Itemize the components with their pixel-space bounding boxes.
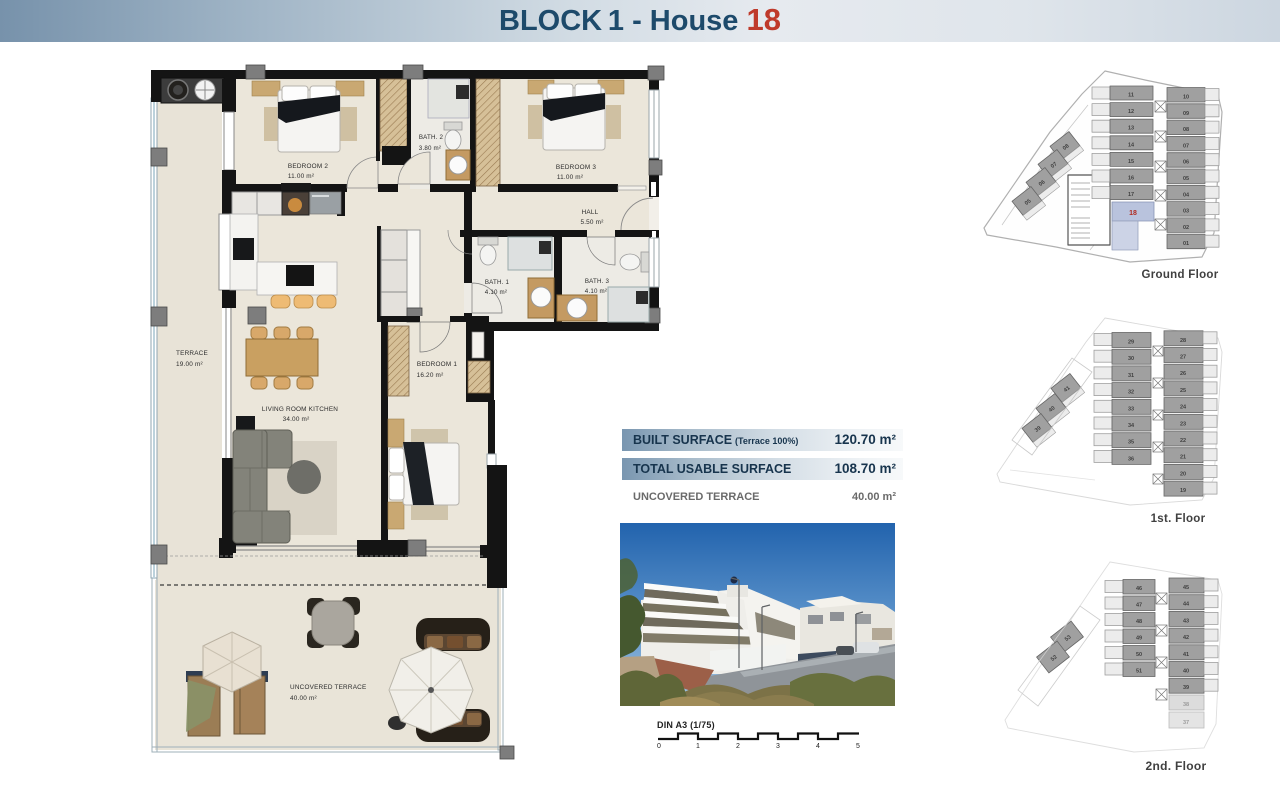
svg-text:BEDROOM 3: BEDROOM 3 <box>556 164 596 171</box>
svg-text:19: 19 <box>1180 488 1186 494</box>
svg-text:44: 44 <box>1183 602 1190 608</box>
svg-text:DIN A3 (1/75): DIN A3 (1/75) <box>657 720 715 730</box>
svg-text:40: 40 <box>1183 669 1189 675</box>
svg-text:35: 35 <box>1128 440 1134 446</box>
svg-text:01: 01 <box>1183 241 1189 247</box>
svg-text:11.00 m²: 11.00 m² <box>557 174 583 181</box>
svg-text:12: 12 <box>1128 109 1134 115</box>
svg-text:15: 15 <box>1128 159 1134 165</box>
svg-text:25: 25 <box>1180 388 1186 394</box>
svg-text:BEDROOM 1: BEDROOM 1 <box>417 361 457 368</box>
svg-text:2nd. Floor: 2nd. Floor <box>1146 759 1207 773</box>
svg-text:43: 43 <box>1183 618 1189 624</box>
svg-text:04: 04 <box>1183 192 1190 198</box>
svg-text:3: 3 <box>776 743 780 750</box>
svg-text:1st. Floor: 1st. Floor <box>1151 513 1206 525</box>
svg-text:5.50 m²: 5.50 m² <box>580 219 603 226</box>
svg-text:45: 45 <box>1183 585 1189 591</box>
svg-text:21: 21 <box>1180 455 1186 461</box>
svg-text:LIVING ROOM KITCHEN: LIVING ROOM KITCHEN <box>262 406 338 413</box>
svg-text:18: 18 <box>1129 210 1137 217</box>
svg-text:22: 22 <box>1180 438 1186 444</box>
svg-text:38: 38 <box>1183 702 1189 708</box>
svg-text:0: 0 <box>657 743 661 750</box>
svg-text:06: 06 <box>1183 160 1189 166</box>
svg-text:50: 50 <box>1136 652 1142 658</box>
svg-text:BEDROOM 2: BEDROOM 2 <box>288 163 328 170</box>
svg-text:51: 51 <box>1136 669 1142 675</box>
svg-text:39: 39 <box>1183 685 1189 691</box>
svg-text:1: 1 <box>696 743 700 750</box>
svg-text:48: 48 <box>1136 619 1142 625</box>
svg-text:24: 24 <box>1180 405 1187 411</box>
svg-text:HALL: HALL <box>582 209 599 216</box>
svg-text:41: 41 <box>1183 652 1189 658</box>
svg-text:36: 36 <box>1128 456 1134 462</box>
svg-text:30: 30 <box>1128 356 1134 362</box>
svg-text:20: 20 <box>1180 471 1186 477</box>
svg-text:5: 5 <box>856 743 860 750</box>
svg-text:TERRACE: TERRACE <box>176 350 208 357</box>
svg-text:19.00 m²: 19.00 m² <box>176 361 203 368</box>
svg-text:03: 03 <box>1183 209 1189 215</box>
svg-text:07: 07 <box>1183 143 1189 149</box>
svg-text:16: 16 <box>1128 176 1134 182</box>
svg-text:BATH. 1: BATH. 1 <box>485 279 510 286</box>
svg-text:UNCOVERED TERRACE: UNCOVERED TERRACE <box>290 684 366 691</box>
svg-text:27: 27 <box>1180 355 1186 361</box>
svg-text:2: 2 <box>736 743 740 750</box>
svg-text:4.10 m²: 4.10 m² <box>585 288 607 295</box>
svg-text:02: 02 <box>1183 225 1189 231</box>
svg-text:34: 34 <box>1128 423 1135 429</box>
svg-text:28: 28 <box>1180 338 1186 344</box>
svg-text:11: 11 <box>1128 93 1134 99</box>
svg-text:4: 4 <box>816 743 820 750</box>
svg-text:34.00 m²: 34.00 m² <box>283 416 310 423</box>
svg-text:42: 42 <box>1183 635 1189 641</box>
svg-text:17: 17 <box>1128 192 1134 198</box>
svg-text:05: 05 <box>1183 176 1189 182</box>
svg-text:10: 10 <box>1183 95 1189 101</box>
svg-text:4.10 m²: 4.10 m² <box>485 289 507 296</box>
svg-text:23: 23 <box>1180 421 1186 427</box>
svg-text:40.00 m²: 40.00 m² <box>290 695 317 702</box>
svg-text:26: 26 <box>1180 371 1186 377</box>
svg-text:49: 49 <box>1136 636 1142 642</box>
svg-text:BATH. 3: BATH. 3 <box>585 278 610 285</box>
svg-text:32: 32 <box>1128 390 1134 396</box>
svg-text:33: 33 <box>1128 406 1134 412</box>
svg-text:13: 13 <box>1128 126 1134 132</box>
svg-text:16.20 m²: 16.20 m² <box>417 372 444 379</box>
svg-text:BATH. 2: BATH. 2 <box>419 134 444 141</box>
svg-text:08: 08 <box>1183 127 1189 133</box>
svg-text:Ground Floor: Ground Floor <box>1141 269 1218 281</box>
svg-text:14: 14 <box>1128 142 1135 148</box>
svg-text:47: 47 <box>1136 603 1142 609</box>
svg-text:31: 31 <box>1128 373 1134 379</box>
svg-text:37: 37 <box>1183 720 1189 726</box>
svg-text:09: 09 <box>1183 111 1189 117</box>
svg-text:29: 29 <box>1128 340 1134 346</box>
svg-text:11.00 m²: 11.00 m² <box>288 173 314 180</box>
svg-text:46: 46 <box>1136 586 1142 592</box>
svg-text:3.80 m²: 3.80 m² <box>419 145 441 152</box>
